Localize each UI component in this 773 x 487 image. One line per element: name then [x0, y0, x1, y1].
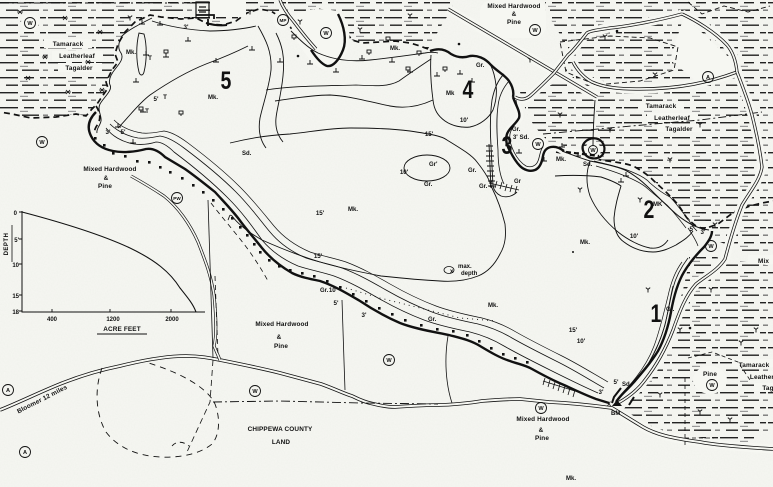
svg-text:W: W	[27, 21, 33, 27]
svg-text:5: 5	[221, 67, 232, 95]
svg-text:&: &	[512, 11, 517, 18]
svg-text:Mk.: Mk.	[390, 46, 400, 52]
svg-text:3' Sd.: 3' Sd.	[513, 134, 530, 141]
svg-text:Tamarack: Tamarack	[646, 103, 677, 110]
svg-text:A: A	[706, 75, 710, 81]
svg-text:Leatherleaf: Leatherleaf	[59, 53, 95, 60]
svg-text:Tag: Tag	[762, 385, 773, 392]
svg-text:1200: 1200	[106, 317, 120, 323]
svg-text:Mixed Hardwood: Mixed Hardwood	[83, 166, 136, 173]
svg-text:BM: BM	[611, 411, 620, 417]
svg-text:2: 2	[643, 196, 654, 224]
svg-text:3': 3'	[184, 24, 189, 31]
svg-text:15: 15	[12, 294, 19, 300]
svg-text:Gr.: Gr.	[424, 182, 433, 188]
svg-text:Sd.: Sd.	[583, 162, 593, 168]
svg-text:3': 3'	[362, 312, 367, 319]
svg-text:DEPTH: DEPTH	[4, 233, 10, 256]
svg-text:Gr': Gr'	[429, 162, 438, 168]
svg-text:Mk.: Mk.	[580, 240, 590, 246]
svg-text:Leatherleaf: Leatherleaf	[654, 115, 690, 122]
svg-text:W: W	[535, 142, 541, 148]
svg-text:Mk.: Mk.	[348, 207, 358, 213]
svg-text:Mix: Mix	[758, 258, 769, 265]
svg-text:Tagalder: Tagalder	[665, 126, 693, 133]
svg-text:W: W	[252, 389, 258, 395]
svg-text:W: W	[708, 244, 714, 250]
svg-text:Gr.: Gr.	[320, 288, 329, 294]
svg-text:Mixed Hardwood: Mixed Hardwood	[255, 321, 308, 328]
svg-text:400: 400	[47, 317, 58, 323]
svg-text:Sd.: Sd.	[242, 151, 252, 157]
svg-text:Gr.: Gr.	[468, 168, 477, 174]
svg-text:Mk.: Mk.	[566, 476, 576, 482]
svg-text:18: 18	[12, 310, 19, 316]
svg-text:Gr.: Gr.	[512, 127, 521, 133]
svg-text:15': 15'	[569, 327, 578, 334]
svg-text:3': 3'	[106, 129, 111, 136]
svg-text:&: &	[104, 175, 109, 182]
svg-text:ACRE FEET: ACRE FEET	[103, 326, 141, 333]
svg-text:&: &	[539, 427, 544, 434]
svg-text:3: 3	[501, 132, 512, 160]
svg-text:W: W	[590, 148, 596, 154]
svg-text:Gr.: Gr.	[479, 184, 488, 190]
svg-text:Pine: Pine	[274, 343, 288, 350]
svg-text:10': 10'	[329, 287, 338, 294]
svg-text:T: T	[163, 94, 167, 101]
svg-text:5': 5'	[121, 129, 126, 136]
svg-text:4: 4	[462, 76, 473, 104]
svg-text:Tagalder: Tagalder	[65, 65, 93, 72]
svg-text:Pine: Pine	[535, 435, 549, 442]
svg-text:W: W	[538, 406, 544, 412]
svg-text:Mixed Hardwood: Mixed Hardwood	[487, 3, 540, 10]
svg-text:1: 1	[650, 300, 661, 328]
svg-text:5': 5'	[334, 300, 339, 307]
svg-text:15': 15'	[316, 210, 325, 217]
svg-text:Pine: Pine	[98, 183, 112, 190]
svg-text:Leather: Leather	[750, 374, 773, 381]
svg-text:MP: MP	[280, 18, 287, 23]
svg-text:15': 15'	[314, 253, 323, 260]
svg-text:5': 5'	[690, 226, 695, 233]
svg-text:Gr.: Gr.	[428, 317, 437, 323]
svg-text:10: 10	[12, 263, 19, 269]
svg-text:A: A	[23, 450, 27, 456]
svg-text:Gr: Gr	[514, 179, 522, 185]
svg-text:CHIPPEWA COUNTY: CHIPPEWA COUNTY	[248, 426, 313, 433]
svg-text:Mixed Hardwood: Mixed Hardwood	[516, 416, 569, 423]
svg-text:&: &	[277, 334, 282, 341]
svg-text:W: W	[709, 383, 715, 389]
svg-text:X: X	[607, 402, 611, 408]
svg-text:5': 5'	[614, 379, 619, 386]
svg-text:W: W	[39, 140, 45, 146]
svg-text:Mk: Mk	[446, 91, 455, 97]
svg-text:3': 3'	[701, 229, 706, 236]
svg-text:5': 5'	[154, 96, 159, 103]
svg-text:10': 10'	[577, 338, 586, 345]
svg-text:Gr.: Gr.	[476, 63, 485, 69]
svg-text:Tamarack: Tamarack	[53, 41, 84, 48]
svg-text:T: T	[145, 108, 149, 115]
svg-text:Mk.: Mk.	[488, 303, 498, 309]
svg-text:Pine: Pine	[703, 371, 717, 378]
svg-text:10': 10'	[460, 117, 469, 124]
svg-text:Mk.: Mk.	[126, 50, 136, 56]
svg-text:3': 3'	[599, 389, 604, 396]
svg-text:15': 15'	[425, 131, 434, 138]
svg-text:2000: 2000	[165, 317, 179, 323]
svg-text:PW: PW	[173, 196, 181, 201]
svg-text:Gr.: Gr.	[666, 307, 675, 313]
svg-text:A: A	[6, 388, 10, 394]
svg-text:MK: MK	[653, 202, 663, 208]
svg-text:Tamarack: Tamarack	[739, 362, 770, 369]
svg-text:W: W	[323, 31, 329, 37]
svg-text:5': 5'	[14, 238, 19, 244]
svg-text:W: W	[386, 358, 392, 364]
svg-text:max.: max.	[458, 264, 472, 270]
svg-text:T: T	[148, 55, 152, 62]
svg-text:W: W	[532, 28, 538, 34]
svg-text:depth: depth	[461, 271, 478, 277]
svg-text:Sd.: Sd.	[622, 382, 632, 388]
svg-text:LAND: LAND	[272, 439, 291, 446]
svg-text:10': 10'	[400, 169, 409, 176]
svg-text:10': 10'	[630, 233, 639, 240]
svg-text:Mk.: Mk.	[208, 95, 218, 101]
svg-text:Mk.: Mk.	[556, 157, 566, 163]
svg-text:Pine: Pine	[507, 19, 521, 26]
